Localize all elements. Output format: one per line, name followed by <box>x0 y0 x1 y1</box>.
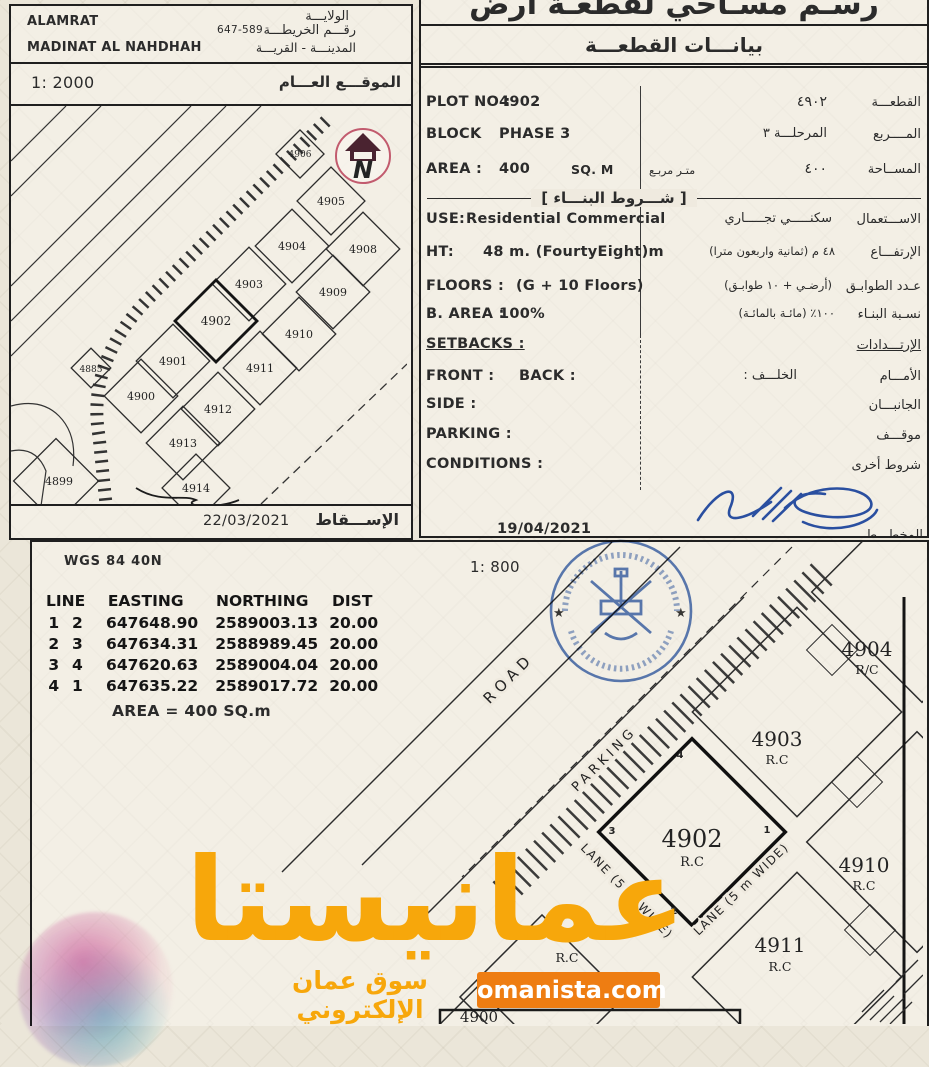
plot-data-panel: رسـم مسـاحي لقطعـة أرض بيانـــات القطعــ… <box>419 0 929 538</box>
colorful-round-stamp <box>18 912 173 1067</box>
height-value: 48 m. (FourtyEight)m <box>483 244 664 260</box>
planner-signature <box>683 460 898 538</box>
site-map-svg: 4906 4905 4904 4908 4903 4909 4902 4910 … <box>11 106 407 506</box>
easting: 647635.22 <box>89 675 202 696</box>
datum-label: WGS 84 40N <box>64 554 163 569</box>
plot-no-value: 4902 <box>499 94 541 110</box>
built-area-label-ar: نسـبة البنـاء <box>858 307 921 322</box>
floors-label: FLOORS : <box>426 278 504 294</box>
column-separator-dashed <box>640 340 641 490</box>
parking-label: PARKING : <box>426 426 512 442</box>
easting: 647620.63 <box>89 654 202 675</box>
area-label: AREA : <box>426 161 482 177</box>
plot-4904-label: 4904 <box>842 637 893 661</box>
plot-label: 4906 <box>289 150 312 160</box>
wilaya-value-en: ALAMRAT <box>27 14 98 29</box>
table-row: 2 3 647634.31 2588989.45 20.00 <box>42 633 382 654</box>
height-label: HT: <box>426 244 454 260</box>
detail-map-scale: 1: 800 <box>470 558 520 576</box>
corner-1: 1 <box>764 825 771 836</box>
line-from: 4 <box>42 675 66 696</box>
easting: 647648.90 <box>89 612 202 633</box>
setbacks-label-ar: الإرتـــدادات <box>857 338 921 353</box>
plot-label: 4903 <box>235 278 263 291</box>
site-label-ar: الموقـــع العـــام <box>279 73 401 91</box>
seal-star-right: ★ <box>675 606 687 621</box>
northing: 2589017.72 <box>202 675 322 696</box>
back-label: BACK : <box>519 368 576 384</box>
plot-4903-use: R.C <box>766 752 789 767</box>
north-letter: N <box>353 156 373 184</box>
use-label: USE: <box>426 211 465 227</box>
front-label: FRONT : <box>426 368 494 384</box>
building-conditions-header: [ شـــروط البنـــاء ] <box>421 189 807 207</box>
plot-4911-use: R.C <box>769 959 792 974</box>
plot-label: 4911 <box>246 362 274 375</box>
col-dist: DIST <box>322 590 382 612</box>
dist: 20.00 <box>322 654 382 675</box>
side-label-ar: الجانبـــان <box>869 398 921 413</box>
area-total: AREA = 400 SQ.m <box>112 702 271 720</box>
built-area-value: 100% <box>499 306 545 322</box>
table-row: 1 2 647648.90 2589003.13 20.00 <box>42 612 382 633</box>
block-label: BLOCK <box>426 126 481 142</box>
height-label-ar: الإرتفـــاع <box>870 245 921 260</box>
planner-label-ar: المخطـــط <box>865 528 923 538</box>
use-value: Residential Commercial <box>466 211 666 227</box>
plot-label-4902: 4902 <box>201 314 232 328</box>
northing: 2589004.04 <box>202 654 322 675</box>
document-title-row: رسـم مسـاحي لقطعـة أرض <box>421 0 927 26</box>
block-value: PHASE 3 <box>499 126 571 142</box>
height-value-ar: ٤٨ م (ثمانية واربعون مترا) <box>709 244 835 258</box>
use-label-ar: الاســـتعمال <box>857 212 921 227</box>
plot-4904-use: R/C <box>855 662 878 677</box>
dist: 20.00 <box>322 612 382 633</box>
scanned-land-survey-document: { "colors": { "paper": "#ebe6d9", "ink":… <box>0 0 929 1024</box>
col-northing: NORTHING <box>202 590 322 612</box>
built-area-label: B. AREA : <box>426 306 505 322</box>
dist: 20.00 <box>322 675 382 696</box>
table-row: 4 1 647635.22 2589017.72 20.00 <box>42 675 382 696</box>
back-label-ar: الخلـــف : <box>743 368 797 383</box>
plot-4911-label: 4911 <box>755 933 806 957</box>
use-value-ar: سكنـــــي تجـــــاري <box>725 211 832 226</box>
floors-value-ar: (أرضـي + ١٠ طوابـق) <box>724 278 832 292</box>
line-from: 1 <box>42 612 66 633</box>
ministry-seal-stamp: ★ ★ <box>545 535 697 687</box>
side-label: SIDE : <box>426 396 476 412</box>
plot-label: 4909 <box>319 286 347 299</box>
area-label-ar: المســاحة <box>868 162 921 177</box>
wilaya-label-ar: الولايـــة <box>305 9 349 24</box>
site-map: 4906 4905 4904 4908 4903 4909 4902 4910 … <box>11 106 411 506</box>
site-date-row: 22/03/2021 الإســـقاط <box>11 504 411 538</box>
line-to: 2 <box>66 612 90 633</box>
projection-label-ar: الإســـقاط <box>315 510 399 529</box>
plot-label: 4885 <box>80 365 103 375</box>
scale-row: 1: 2000 الموقـــع العـــام <box>11 64 411 106</box>
plot-data-body: PLOT NO : 4902 ٤٩٠٢ القطعـــة BLOCK PHAS… <box>421 68 927 538</box>
plot-label: 4905 <box>317 195 345 208</box>
corner-hatch <box>862 960 923 1024</box>
location-panel: ALAMRAT الولايـــة 647-589 رقـــم الخريط… <box>9 4 413 540</box>
plot-label: 4910 <box>285 328 313 341</box>
hatched-road-strip <box>97 121 326 504</box>
plot-4910-use: R.C <box>853 878 876 893</box>
city-value-en: MADINAT AL NAHDHAH <box>27 40 202 55</box>
area-unit: SQ. M <box>571 162 614 177</box>
table-row: 3 4 647620.63 2589004.04 20.00 <box>42 654 382 675</box>
plot-no-value-ar: ٤٩٠٢ <box>797 94 827 110</box>
location-header: ALAMRAT الولايـــة 647-589 رقـــم الخريط… <box>11 6 411 64</box>
watermark-domain-badge: omanista.com <box>477 972 660 1008</box>
site-map-date: 22/03/2021 <box>203 513 290 529</box>
parking-label-ar: موقـــف <box>876 428 921 443</box>
parking-label: PARKING <box>569 724 640 795</box>
north-house-icon: N <box>336 129 390 184</box>
oman-emblem-icon <box>591 569 651 639</box>
plot-4903-label: 4903 <box>752 727 803 751</box>
city-label-ar: المدينـــة - القريـــة <box>256 40 356 55</box>
plot-no-label: PLOT NO : <box>426 94 511 110</box>
plot-no-label-ar: القطعـــة <box>872 95 921 110</box>
line-to: 3 <box>66 633 90 654</box>
col-easting: EASTING <box>89 590 202 612</box>
corner-4: 4 <box>677 750 684 761</box>
conditions-label: CONDITIONS : <box>426 456 543 472</box>
lane-right-label: LANE (5 m WIDE) <box>691 840 792 938</box>
coordinates-table: LINE EASTING NORTHING DIST 1 2 647648.90… <box>42 590 382 696</box>
built-area-value-ar: ١٠٠٪ (مائـة بالمائـة) <box>739 306 836 320</box>
plot-data-subtitle: بيانـــات القطعـــة <box>421 26 927 68</box>
line-from: 2 <box>42 633 66 654</box>
dist: 20.00 <box>322 633 382 654</box>
plot-label: 4900 <box>127 390 155 403</box>
watermark-tagline: سوق عمان الإلكتروني <box>248 966 472 1024</box>
col-line: LINE <box>42 590 89 612</box>
line-from: 3 <box>42 654 66 675</box>
area-value-ar: ٤٠٠ <box>804 161 827 177</box>
plot-label: 4904 <box>278 240 306 253</box>
setbacks-label: SETBACKS : <box>426 336 525 352</box>
plot-label: 4899 <box>45 475 73 488</box>
coordinates-header-row: LINE EASTING NORTHING DIST <box>42 590 382 612</box>
floors-value: (G + 10 Floors) <box>516 278 644 294</box>
seal-star-left: ★ <box>553 606 565 621</box>
document-title: رسـم مسـاحي لقطعـة أرض <box>421 0 927 22</box>
block-value-ar: المرحلـــة ٣ <box>763 126 827 141</box>
front-label-ar: الأمـــام <box>880 369 921 384</box>
map-number-value: 647-589 <box>217 24 263 36</box>
watermark-brand: عمانيستا <box>228 826 686 978</box>
plot-label: 4913 <box>169 437 197 450</box>
northing: 2588989.45 <box>202 633 322 654</box>
line-to: 4 <box>66 654 90 675</box>
block-label-ar: المــــربع <box>873 127 921 142</box>
area-unit-ar: متـر مربـع <box>649 164 695 177</box>
plot-label: 4901 <box>159 355 187 368</box>
plot-label: 4914 <box>182 482 210 495</box>
dashed-boundary <box>261 364 407 504</box>
northing: 2589003.13 <box>202 612 322 633</box>
map-number-label-ar: رقـــم الخريطـــة <box>263 23 356 38</box>
line-to: 1 <box>66 675 90 696</box>
floors-label-ar: عـدد الطوابـق <box>846 279 921 294</box>
area-value: 400 <box>499 161 530 177</box>
plot-label: 4912 <box>204 403 232 416</box>
plot-4910-label: 4910 <box>839 853 890 877</box>
easting: 647634.31 <box>89 633 202 654</box>
site-map-scale: 1: 2000 <box>31 73 94 92</box>
plot-label: 4908 <box>349 243 377 256</box>
